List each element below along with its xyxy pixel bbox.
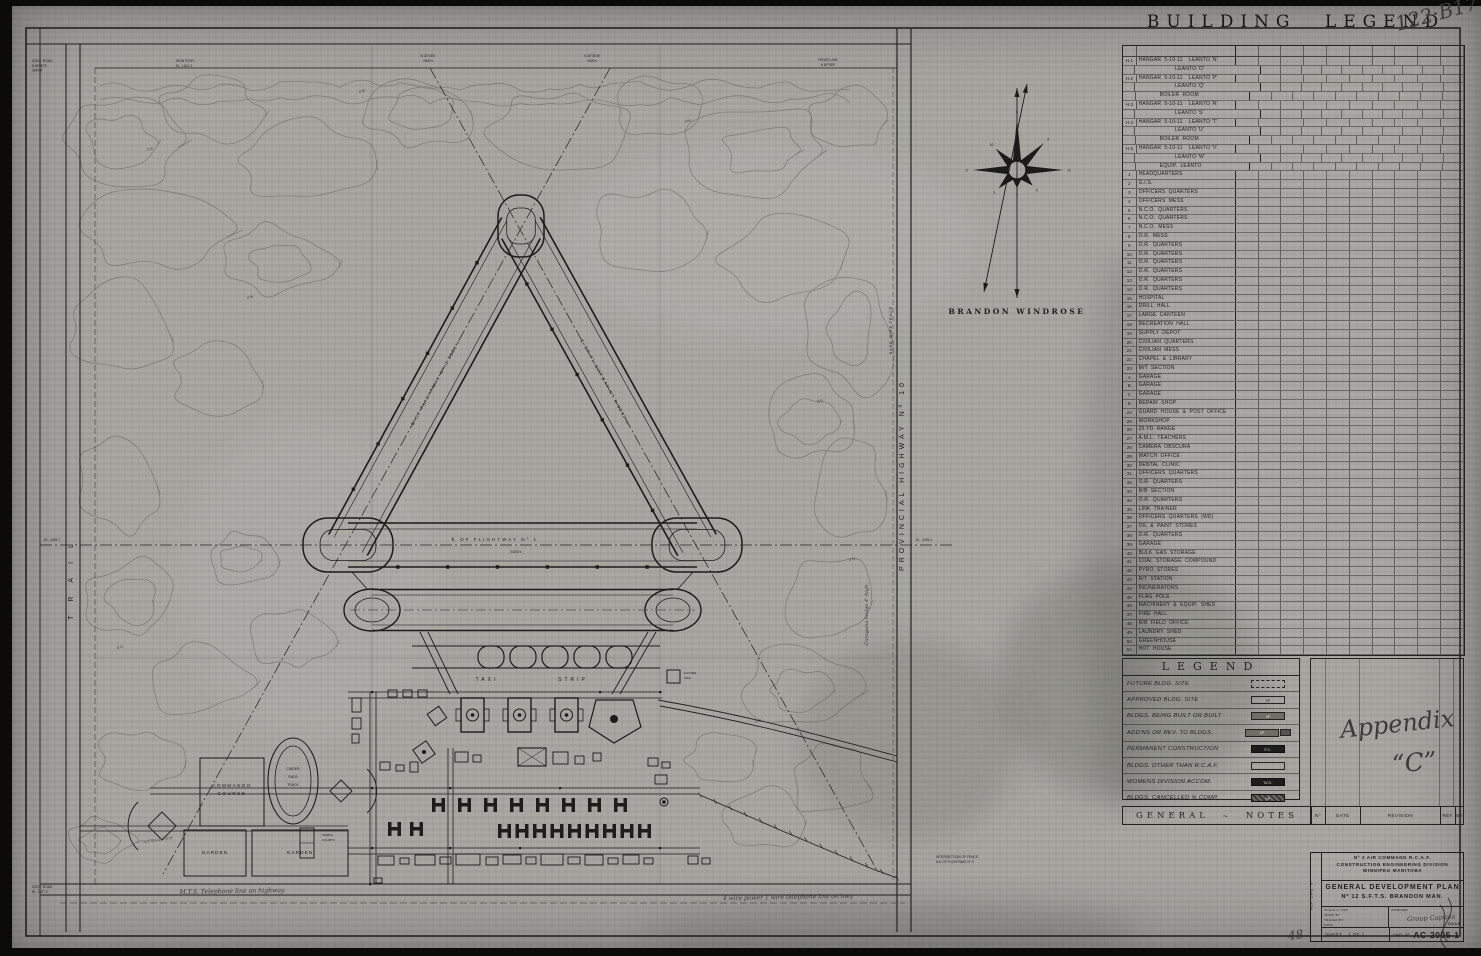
building-number: 13 [1123, 277, 1137, 285]
grid-cell [1304, 189, 1327, 197]
building-legend-row: H.2HANGAR 5-10-11 LEANTO 'P' [1123, 75, 1464, 84]
approved-organization: D.G.C.E. [1448, 922, 1461, 926]
runway-marker [397, 566, 399, 568]
grid-cell [1281, 382, 1304, 390]
barrack-block [392, 827, 398, 831]
hangar-leanto [503, 709, 508, 721]
taxi-loop [478, 646, 504, 668]
barrack-block [586, 824, 590, 838]
grid-cell [1281, 286, 1304, 294]
grid-cell [1236, 198, 1259, 206]
grid-cell [1261, 154, 1281, 162]
building-name: O.R. QUARTERS [1137, 532, 1236, 540]
barrack-block [568, 824, 572, 838]
grid-cell [1444, 66, 1464, 74]
grid-cell [1304, 646, 1327, 654]
label-race-2: RACE [288, 775, 298, 779]
contour-loop [722, 786, 806, 847]
barrack-block [572, 798, 576, 812]
grid-cell [1379, 163, 1400, 171]
grid-cell [1350, 453, 1373, 461]
grid-cell [1441, 330, 1464, 338]
grid-cell [1327, 400, 1350, 408]
legend-filled-symbol-icon: Nº [1251, 712, 1285, 720]
grid-cell [1304, 462, 1327, 470]
grid-cell [1373, 514, 1396, 522]
grid-cell [1327, 295, 1350, 303]
grid-cell [1304, 479, 1327, 487]
building-legend-row: 15HOSPITAL [1123, 295, 1464, 304]
barrack-block [614, 798, 618, 812]
grid-cell [1327, 470, 1350, 478]
building-name: O.R. QUARTERS [1137, 251, 1236, 259]
barrack-block [436, 803, 442, 807]
grid-cell [1373, 488, 1396, 496]
grid-cell [1441, 594, 1464, 602]
grid-cell [1259, 215, 1282, 223]
grid-cell [1259, 470, 1282, 478]
windrose-value: 4 [1047, 137, 1049, 141]
title-block-signoff: SCALE 1"=200' WORK BY TRACED BY DATE APP… [1322, 907, 1463, 928]
legend-item-row: FUTURE BLDG. SITE [1123, 676, 1299, 692]
org-line-3: WINNIPEG MANITOBA [1322, 868, 1463, 875]
barrack-block [462, 803, 468, 807]
building-name: M/T SECTION [1137, 365, 1236, 373]
building-name: HOT HOUSE [1137, 646, 1236, 654]
grid-cell [1281, 259, 1304, 267]
grid-cell [1363, 110, 1383, 118]
grid-cell [1259, 497, 1282, 505]
runway-marker [646, 566, 648, 568]
culvert-dot [519, 847, 521, 849]
windrose-value: 10 [990, 143, 994, 147]
legend-addn-symbol-icon: Nº [1245, 729, 1279, 737]
label-note-nw-0: GOVT. ROAD [32, 59, 53, 63]
grid-cell [1350, 444, 1373, 452]
building-name: GREENHOUSE [1137, 638, 1236, 646]
grid-cell [1441, 321, 1464, 329]
grid-cell [1418, 638, 1441, 646]
building-name: O.R. QUARTERS [1137, 479, 1236, 487]
flightway2-centerline [163, 68, 610, 874]
revision-col-no: Nº [1311, 807, 1326, 824]
building [440, 857, 451, 864]
grid-cell [1350, 233, 1373, 241]
grid-cell [1363, 66, 1383, 74]
barrack-block [488, 803, 494, 807]
grid-cell [1395, 532, 1418, 540]
grid-cell [1261, 66, 1281, 74]
building-number: 11 [1123, 259, 1137, 267]
grid-cell [1395, 215, 1418, 223]
building-name: FIRE HALL [1137, 611, 1236, 619]
sheet-cell: SHEET1 OF 1 [1322, 928, 1390, 941]
grid-cell [1441, 576, 1464, 584]
building-number: 5 [1123, 207, 1137, 215]
grid-cell [1395, 506, 1418, 514]
barrack-block [484, 798, 488, 812]
grid-cell [1373, 233, 1396, 241]
label-garden-west: GARDEN [202, 850, 229, 856]
taxi-loop [606, 646, 632, 668]
camp-access-road [660, 706, 897, 762]
grid-cell [1259, 409, 1282, 417]
grid-cell [1327, 629, 1350, 637]
grid-cell [1304, 233, 1327, 241]
building-name: FLAG POLE [1137, 594, 1236, 602]
grid-cell [1236, 374, 1259, 382]
windrose-petal [973, 166, 1007, 174]
legend-symbol-cell: Nº [1237, 696, 1299, 704]
grid-cell [1327, 339, 1350, 347]
label-note-ne-0: FENCE LINE [818, 58, 838, 62]
building-name: OFFICERS QUARTERS (WD) [1137, 514, 1236, 522]
grid-cell [1259, 303, 1282, 311]
building-number: 42 [1123, 567, 1137, 575]
taxi-loop [542, 646, 568, 668]
grid-cell [1259, 576, 1282, 584]
grid-cell [1373, 303, 1396, 311]
building-name: COAL STORAGE COMPOUND [1137, 558, 1236, 566]
grid-cell [1304, 347, 1327, 355]
grid-cell [1281, 101, 1304, 109]
title-block-side-label: REF. DWG. Nº [1310, 880, 1314, 909]
grid-cell [1441, 638, 1464, 646]
grid-cell [1327, 488, 1350, 496]
barrack-block [578, 824, 582, 838]
runway-edge [329, 217, 502, 534]
grid-cell [1350, 602, 1373, 610]
contour-loop [778, 399, 842, 445]
grid-cell [1350, 646, 1373, 654]
building-legend-row: 23M/T SECTION [1123, 365, 1464, 374]
grid-cell [1281, 532, 1304, 540]
grid-cell [1261, 83, 1281, 91]
grid-cell [1259, 224, 1282, 232]
building [503, 855, 521, 864]
grid-cell [1395, 242, 1418, 250]
dwg-no-label: DWG. Nº [1393, 932, 1409, 937]
building-number: 14 [1123, 286, 1137, 294]
barrack-block [520, 798, 524, 812]
legend-hatched-symbol-icon: Nº [1251, 794, 1285, 802]
grid-cell [1373, 356, 1396, 364]
grid-cell [1281, 585, 1304, 593]
grid-cell [1418, 462, 1441, 470]
grid-cell [1441, 541, 1464, 549]
grid-cell [1304, 523, 1327, 531]
building-name: OFFICERS QUARTERS [1137, 189, 1236, 197]
label-note-intersection-1: & ℄ OF FLIGHTWAY Nº 3 [936, 860, 974, 864]
label-contour-elevation-0: 1190 [146, 146, 154, 151]
grid-cell [1281, 83, 1301, 91]
grid-cell [1441, 268, 1464, 276]
runway-marker [526, 283, 528, 285]
building-number: 16 [1123, 303, 1137, 311]
grid-cell [1418, 470, 1441, 478]
barrack-block [589, 829, 595, 833]
handwritten-number: 48 [1287, 927, 1304, 943]
label-trail: TRAIL [68, 530, 75, 620]
grid-cell [1281, 576, 1304, 584]
grid-cell [1357, 92, 1378, 100]
windrose-icon: 8412632510 [966, 84, 1071, 298]
barrack-block [592, 803, 598, 807]
building-legend-row: 22CHAPEL & LIBRARY [1123, 356, 1464, 365]
building-legend-row: 3OFFICERS QUARTERS [1123, 189, 1464, 198]
building-name: O.R. MESS [1137, 233, 1236, 241]
building-legend-row: 41COAL STORAGE COMPOUND [1123, 558, 1464, 567]
grid-cell [1259, 418, 1282, 426]
grid-cell [1259, 347, 1282, 355]
grid-cell [1395, 57, 1418, 65]
contour-loop [99, 732, 186, 791]
building-name: HANGAR 5-10-11 LEANTO 'P' [1137, 75, 1236, 83]
label-note-nw-1: N 89°52'E [32, 64, 48, 68]
barrack-block [638, 824, 642, 838]
contour-loop [805, 277, 894, 397]
grid-cell [1259, 400, 1282, 408]
grid-cell [1304, 75, 1327, 83]
culvert-dot [371, 847, 373, 849]
runway-edge [502, 239, 678, 556]
barrack-block [442, 798, 446, 812]
label-contour-elevation-1: 1195 [246, 294, 254, 299]
building-legend-row: 9O.R. QUARTERS [1123, 242, 1464, 251]
runway-marker [377, 443, 379, 445]
grid-cell [1395, 444, 1418, 452]
grid-cell [1281, 242, 1304, 250]
approved-label: APPROVED [1391, 908, 1408, 912]
label-note-ne-1: N 89°55'E [821, 63, 837, 67]
building [400, 858, 409, 864]
grid-cell [1443, 92, 1464, 100]
grid-cell [1395, 523, 1418, 531]
grid-cell [1327, 321, 1350, 329]
grid-cell [1236, 514, 1259, 522]
building-number: 44 [1123, 585, 1137, 593]
grid-cell [1327, 620, 1350, 628]
legend-symbol-cell: Nº [1237, 712, 1299, 720]
building-name: SUPPLY DEPOT [1137, 330, 1236, 338]
barrack-block [572, 829, 578, 833]
legend-item-label: PERMANENT CONSTRUCTION [1123, 746, 1237, 752]
grid-cell [1350, 259, 1373, 267]
grid-cell [1336, 92, 1357, 100]
building-number: 21 [1123, 347, 1137, 355]
building-number: 12 [1123, 268, 1137, 276]
grid-cell [1357, 136, 1378, 144]
building-legend-row: AGARAGE [1123, 374, 1464, 383]
grid-cell [1441, 382, 1464, 390]
header-grid-cell [1395, 46, 1418, 56]
grid-cell [1418, 303, 1441, 311]
grid-cell [1236, 286, 1259, 294]
culvert-dot [369, 883, 371, 885]
grid-cell [1444, 110, 1464, 118]
grid-cell [1236, 629, 1259, 637]
building-number: 10 [1123, 251, 1137, 259]
hangar-leanto [484, 709, 489, 721]
grid-cell [1395, 629, 1418, 637]
grid-cell [1281, 558, 1304, 566]
legend-item-label: BLDGS. OTHER THAN R.C.A.F. [1123, 763, 1237, 769]
grid-cell [1350, 312, 1373, 320]
grid-cell [1441, 295, 1464, 303]
grid-cell [1350, 330, 1373, 338]
legend-title: LEGEND [1123, 659, 1299, 676]
label-garden-east: GARDEN [287, 850, 314, 856]
runway-marker [426, 352, 428, 354]
grid-cell [1281, 198, 1304, 206]
grid-cell [1327, 409, 1350, 417]
grid-cell [1281, 435, 1304, 443]
grid-cell [1304, 259, 1327, 267]
grid-cell [1395, 646, 1418, 654]
building-number: 41 [1123, 558, 1137, 566]
grid-cell [1395, 295, 1418, 303]
grid-cell [1395, 180, 1418, 188]
legend-symbol-mark: W.D. [1264, 780, 1273, 785]
building-legend-row: LEANTO 'W' [1123, 154, 1464, 163]
building-number: 34 [1123, 497, 1137, 505]
grid-cell [1418, 514, 1441, 522]
grid-cell [1281, 426, 1304, 434]
grid-cell [1373, 602, 1396, 610]
grid-cell [1350, 75, 1373, 83]
grid-cell [1259, 295, 1282, 303]
building-name: HANGAR 5-10-11 LEANTO 'R' [1137, 101, 1236, 109]
grid-cell [1281, 550, 1304, 558]
taxi-loop [510, 646, 536, 668]
rotated-building [427, 706, 446, 725]
grid-cell [1281, 374, 1304, 382]
building-legend-row: 50GREENHOUSE [1123, 638, 1464, 647]
grid-cell [1418, 523, 1441, 531]
revision-col-ref: REF. [1441, 807, 1456, 824]
grid-cell [1304, 497, 1327, 505]
grid-cell [1373, 532, 1396, 540]
contour-loop [220, 546, 262, 572]
grid-cell [1259, 198, 1282, 206]
grid-cell [1350, 382, 1373, 390]
building-name: A.M.L. TEACHERS [1137, 435, 1236, 443]
contour-loop [389, 87, 454, 129]
grid-cell [1373, 347, 1396, 355]
grid-cell [1304, 356, 1327, 364]
grid-cell [1418, 75, 1441, 83]
grid-cell [1441, 523, 1464, 531]
building-name: GARAGE [1137, 391, 1236, 399]
grid-cell [1395, 198, 1418, 206]
barrack-block [595, 824, 599, 838]
grid-cell [1373, 207, 1396, 215]
header-grid-cell [1304, 46, 1327, 56]
grid-cell [1441, 101, 1464, 109]
culvert-dot [449, 847, 451, 849]
grid-cell [1418, 312, 1441, 320]
grid-cell [1373, 119, 1396, 127]
legend-outline-symbol-icon [1251, 762, 1285, 770]
power-line-tick [774, 824, 777, 829]
barrack-block [624, 798, 628, 812]
grid-cell [1350, 426, 1373, 434]
grid-cell [1373, 251, 1396, 259]
grid-cell [1418, 251, 1441, 259]
grid-cell [1395, 75, 1418, 83]
building-legend-row: CGARAGE [1123, 391, 1464, 400]
runway-edge [540, 217, 716, 534]
building-name: PYRO STORES [1137, 567, 1236, 575]
grid-cell [1395, 391, 1418, 399]
grid-cell [1281, 233, 1304, 241]
grid-cell [1281, 339, 1304, 347]
building-legend-row: LEANTO 'U' [1123, 127, 1464, 136]
grid-cell [1350, 409, 1373, 417]
grid-cell [1350, 251, 1373, 259]
grid-cell [1350, 321, 1373, 329]
building [455, 752, 468, 762]
grid-cell [1441, 171, 1464, 179]
contour-loop [86, 115, 161, 169]
building-legend-row: EQUIP. LEANTO [1123, 163, 1464, 172]
grid-cell [1444, 154, 1464, 162]
legend-item-label: ADD'NS OR REV. TO BLDGS. [1123, 730, 1237, 736]
grid-cell [1304, 602, 1327, 610]
grid-cell [1418, 620, 1441, 628]
grid-cell [1350, 347, 1373, 355]
runway-marker [626, 464, 628, 466]
contour-lines [63, 75, 894, 863]
grid-cell [1395, 479, 1418, 487]
grid-cell [1327, 646, 1350, 654]
grid-cell [1418, 57, 1441, 65]
barrack-block [420, 822, 424, 836]
grid-cell [1281, 321, 1304, 329]
grid-cell [1441, 550, 1464, 558]
building-legend-row: BOILER ROOM [1123, 92, 1464, 101]
label-commando-1: COMMANDO [212, 783, 252, 788]
grid-cell [1395, 330, 1418, 338]
building-name: R/T STATION [1137, 576, 1236, 584]
contour-loop [174, 341, 264, 416]
grid-cell [1236, 119, 1259, 127]
grid-cell [1418, 233, 1441, 241]
grid-cell [1441, 391, 1464, 399]
grid-cell [1281, 75, 1304, 83]
grid-cell [1304, 567, 1327, 575]
grid-cell [1395, 462, 1418, 470]
grid-cell [1259, 541, 1282, 549]
grid-cell [1395, 286, 1418, 294]
grid-cell [1350, 550, 1373, 558]
building-number [1123, 83, 1135, 91]
runway-marker [352, 488, 354, 490]
grid-cell [1350, 277, 1373, 285]
building-legend-row: 11O.R. QUARTERS [1123, 259, 1464, 268]
grid-cell [1281, 251, 1304, 259]
runway-marker [601, 419, 603, 421]
legend-symbol-cell [1237, 762, 1299, 770]
grid-cell [1373, 268, 1396, 276]
building-legend-row: H.5HANGAR 5-10-11 LEANTO 'V' [1123, 145, 1464, 154]
runway-edge [334, 220, 507, 537]
building-legend-row: 31OFFICERS QUARTERS [1123, 470, 1464, 479]
building-name: RECREATION HALL [1137, 321, 1236, 329]
grid-cell [1395, 145, 1418, 153]
legend-item-row: PERMANENT CONSTRUCTIONP.C. [1123, 742, 1299, 758]
grid-cell [1441, 374, 1464, 382]
